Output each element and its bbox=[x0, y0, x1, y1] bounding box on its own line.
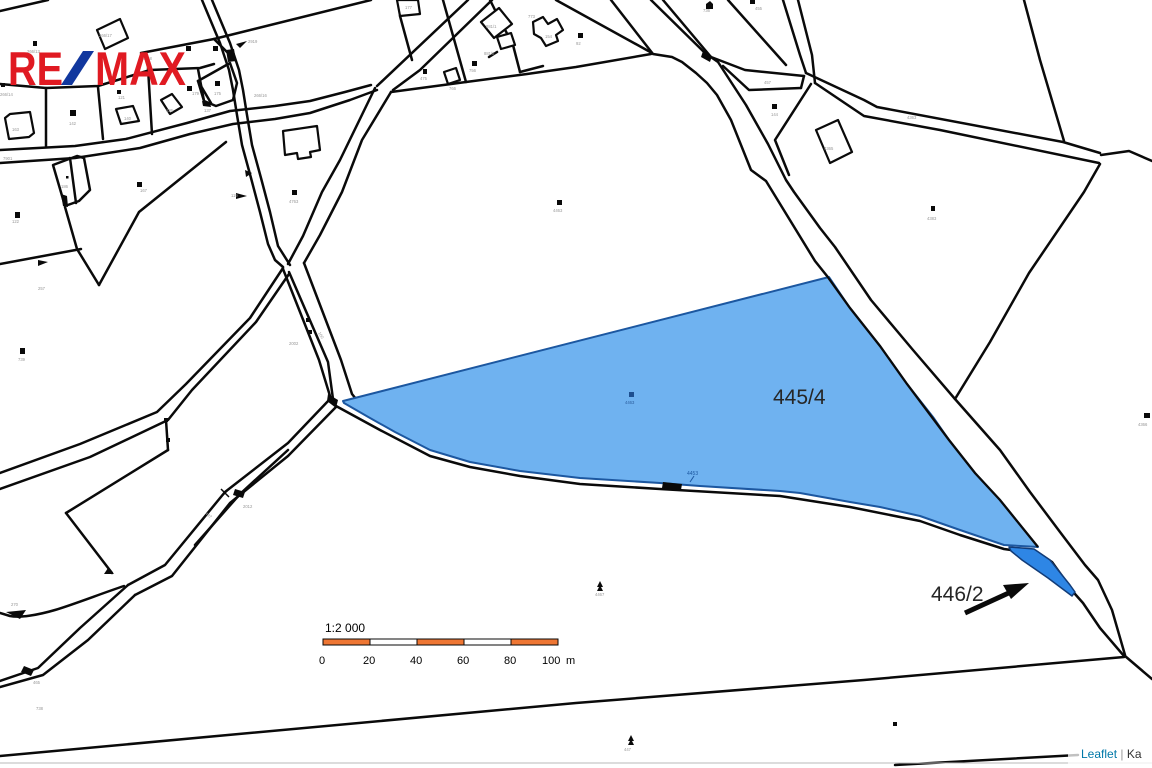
svg-text:266/16: 266/16 bbox=[254, 93, 267, 98]
svg-text:465: 465 bbox=[33, 680, 41, 685]
svg-text:m: m bbox=[566, 655, 575, 667]
svg-text:186: 186 bbox=[61, 184, 69, 189]
svg-text:167: 167 bbox=[140, 188, 148, 193]
svg-text:739: 739 bbox=[18, 357, 26, 362]
svg-text:773: 773 bbox=[528, 14, 536, 19]
svg-text:4467: 4467 bbox=[595, 592, 605, 597]
svg-text:163: 163 bbox=[12, 127, 20, 132]
svg-text:881/1: 881/1 bbox=[486, 24, 497, 29]
svg-text:92: 92 bbox=[576, 41, 581, 46]
svg-text:177: 177 bbox=[405, 5, 413, 10]
svg-text:60: 60 bbox=[457, 655, 469, 667]
svg-text:2002: 2002 bbox=[289, 341, 299, 346]
svg-text:7901: 7901 bbox=[3, 156, 13, 161]
svg-text:142: 142 bbox=[69, 121, 77, 126]
svg-text:154: 154 bbox=[545, 34, 553, 39]
svg-text:4463: 4463 bbox=[553, 208, 563, 213]
svg-text:136: 136 bbox=[166, 108, 174, 113]
svg-text:2919: 2919 bbox=[248, 39, 258, 44]
svg-text:MAX: MAX bbox=[95, 42, 186, 95]
svg-text:119: 119 bbox=[231, 193, 238, 198]
svg-text:475: 475 bbox=[420, 76, 428, 81]
svg-text:122: 122 bbox=[12, 219, 20, 224]
svg-text:447: 447 bbox=[624, 747, 632, 752]
svg-text:4453: 4453 bbox=[687, 471, 698, 477]
svg-text:4763: 4763 bbox=[289, 199, 299, 204]
svg-text:Leaflet | Ka: Leaflet | Ka bbox=[1081, 747, 1142, 761]
svg-text:455: 455 bbox=[755, 6, 763, 11]
svg-text:445/4: 445/4 bbox=[773, 386, 826, 409]
svg-text:RE: RE bbox=[8, 42, 63, 95]
svg-text:738: 738 bbox=[36, 706, 44, 711]
svg-text:80: 80 bbox=[504, 655, 516, 667]
svg-text:140: 140 bbox=[124, 116, 132, 121]
svg-text:100: 100 bbox=[542, 655, 560, 667]
svg-text:175: 175 bbox=[214, 91, 222, 96]
svg-text:144: 144 bbox=[771, 112, 779, 117]
svg-text:4463: 4463 bbox=[625, 400, 635, 405]
svg-text:446/2: 446/2 bbox=[931, 583, 984, 606]
svg-text:266/17: 266/17 bbox=[99, 33, 112, 38]
svg-text:257: 257 bbox=[38, 286, 46, 291]
svg-text:20: 20 bbox=[363, 655, 375, 667]
svg-text:40: 40 bbox=[410, 655, 422, 667]
svg-text:4366: 4366 bbox=[1138, 422, 1148, 427]
svg-text:121: 121 bbox=[118, 95, 126, 100]
svg-text:756: 756 bbox=[469, 68, 477, 73]
svg-text:4363: 4363 bbox=[907, 115, 917, 120]
svg-text:881/2: 881/2 bbox=[484, 51, 495, 56]
svg-text:457: 457 bbox=[764, 80, 772, 85]
svg-text:0: 0 bbox=[319, 655, 325, 667]
svg-text:736: 736 bbox=[703, 8, 711, 13]
svg-text:137: 137 bbox=[204, 108, 212, 113]
svg-text:4383: 4383 bbox=[927, 216, 937, 221]
svg-text:1:2 000: 1:2 000 bbox=[325, 621, 365, 635]
svg-text:766: 766 bbox=[449, 86, 457, 91]
svg-text:4365: 4365 bbox=[824, 146, 834, 151]
svg-text:2012: 2012 bbox=[243, 504, 253, 509]
svg-text:179: 179 bbox=[192, 91, 200, 96]
svg-text:270: 270 bbox=[11, 602, 19, 607]
